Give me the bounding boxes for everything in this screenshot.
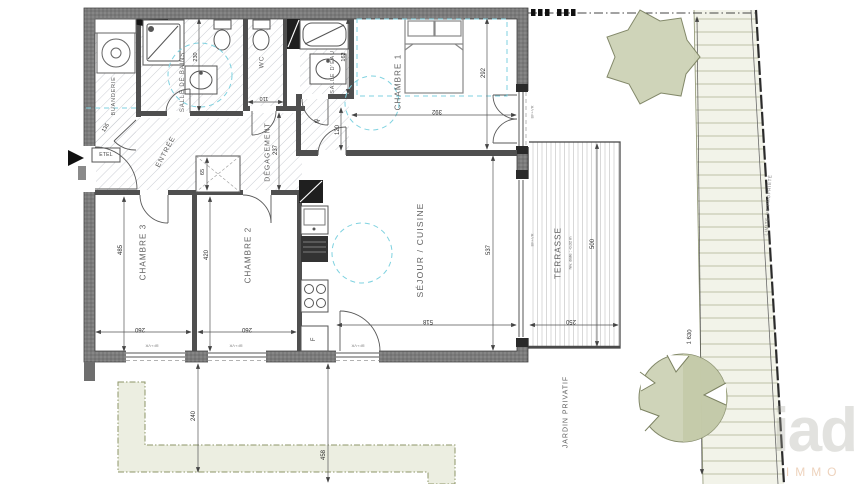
bathtub-icon <box>300 20 349 49</box>
tree-icon-top <box>607 10 700 104</box>
bed-icon <box>405 19 463 93</box>
terrasse-level-note: Niv. dalle : -0,02 m <box>568 236 573 269</box>
watermark-brand: iad <box>772 400 856 462</box>
window-type-tag: BF+VR <box>229 344 242 349</box>
dim-sejour-width: 518 <box>423 318 433 324</box>
kitchen-units <box>301 206 328 351</box>
dim-salle-de-bains: 230 <box>193 52 199 61</box>
area-label-jardin-privatif: JARDIN PRIVATIF <box>563 376 570 448</box>
floor-plan-graphic <box>0 0 860 484</box>
room-label-chambre-2: CHAMBRE 2 <box>244 227 253 284</box>
window-type-tag: BF+VR <box>145 344 158 349</box>
dim-chambre1-door: 120 <box>335 125 341 135</box>
dim-chambre1-height: 292 <box>481 68 487 78</box>
dim-sejour-height: 537 <box>486 245 492 255</box>
dim-salle-deau: 162 <box>341 52 347 61</box>
dim-chambre2-width: 260 <box>242 326 252 332</box>
room-label-salle-de-bains: SALLE DE BAINS <box>180 52 186 112</box>
laundry-fixtures <box>95 19 136 73</box>
fridge-label: F <box>311 337 317 342</box>
room-label-chambre-3: CHAMBRE 3 <box>139 224 148 281</box>
toilet-icon-wc <box>253 20 270 50</box>
dim-wc-width: 110 <box>260 95 269 101</box>
window-type-tag: BF+VR <box>530 233 535 246</box>
dim-chambre3-width: 260 <box>135 326 145 332</box>
window-type-tag: BF+VR <box>530 105 535 118</box>
watermark-sub: IMMO <box>772 466 856 478</box>
dim-chambre2-height: 420 <box>204 250 210 260</box>
watermark: iad IMMO <box>772 400 856 478</box>
etel-label: ETEL <box>99 152 113 158</box>
room-label-sejour-cuisine: SÉJOUR / CUISINE <box>415 202 425 297</box>
dim-chambre3-height: 485 <box>118 245 124 255</box>
toilet-icon-bathroom <box>214 20 231 50</box>
dim-entree-small: 45 <box>314 117 320 123</box>
tree-icon-bottom <box>639 354 727 442</box>
window-type-tag: BF+VR <box>351 344 364 349</box>
floor-plan: BUANDERIE SALLE DE BAINS WC SALLE D'EAU … <box>0 0 860 484</box>
room-label-wc: WC <box>259 56 266 69</box>
shower-icon <box>143 20 184 65</box>
dim-terrasse-height: 500 <box>590 239 596 249</box>
dim-chambre1-width: 392 <box>432 108 442 114</box>
dim-garden-near: 240 <box>191 411 197 421</box>
garden-path <box>118 382 455 484</box>
garden-wall-stub <box>84 362 95 381</box>
dim-degagement: 237 <box>273 145 279 155</box>
room-label-salle-deau: SALLE D'EAU <box>330 50 336 93</box>
room-label-terrasse: TERRASSE <box>554 227 563 279</box>
room-label-degagement: DÉGAGEMENT <box>265 122 272 182</box>
dim-terrasse-width: 250 <box>566 318 576 324</box>
room-label-buanderie: BUANDERIE <box>111 76 117 115</box>
dim-placard: 65 <box>200 169 206 175</box>
room-label-chambre-1: CHAMBRE 1 <box>394 54 403 111</box>
dim-garden-length: 1 630 <box>687 329 694 344</box>
dim-garden-far: 458 <box>321 450 327 460</box>
